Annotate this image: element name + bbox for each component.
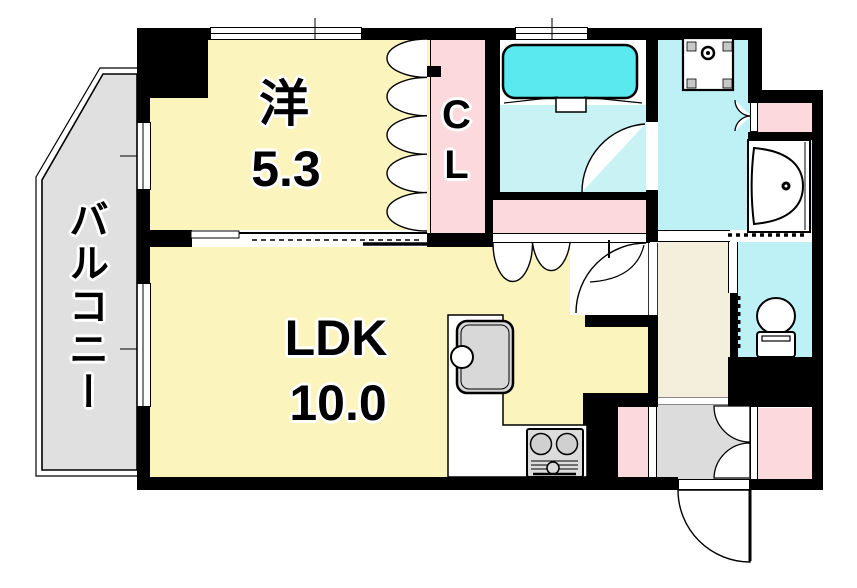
wall-vestibule-south [585, 315, 648, 327]
entry-door-icon [678, 490, 750, 562]
bathtub-area [500, 40, 646, 105]
hallway-floor [658, 242, 730, 397]
western-room-size: 5.3 [236, 142, 336, 196]
balcony-label: バルコニー [62, 186, 114, 426]
entrance-closet-leaf [750, 407, 758, 479]
entry-door-frame [678, 479, 750, 490]
window-bath-top [515, 27, 588, 40]
wall-vestibule-hall [648, 315, 658, 397]
linen-closet-leaf [750, 100, 758, 132]
linen-closet-floor [753, 100, 812, 132]
wall-se-block [583, 407, 618, 477]
wall-below-linen [748, 132, 812, 140]
toilet-doorway [728, 242, 738, 293]
wall-cl-bath [485, 40, 500, 200]
entrance-floor [657, 405, 750, 479]
ldk-vestibule [570, 243, 650, 315]
floor-plan: 洋 5.3 LDK 10.0 CL バルコニー [0, 0, 857, 588]
sliding-door-band-western-ldk [190, 230, 427, 247]
ldk-floor-east [585, 327, 648, 393]
wall-below-toilet [728, 357, 823, 407]
ldk-size: 10.0 [258, 376, 418, 430]
shoe-cabinet-right [758, 408, 812, 479]
wall-below-cl [427, 233, 493, 247]
toilet-room-floor [738, 242, 812, 357]
wall-corner-block [150, 40, 208, 98]
wall-western-south [137, 230, 192, 247]
window-western-top [210, 27, 362, 40]
western-room-label: 洋 [234, 76, 334, 132]
wall-bath-south [485, 192, 658, 200]
wall-left [137, 40, 150, 477]
wall-top-right [748, 90, 823, 103]
wall-right [812, 90, 823, 479]
wall-bath-right-upper [646, 28, 658, 122]
window-western-left [136, 122, 151, 190]
window-ldk-left [136, 283, 151, 407]
wall-bottom [137, 477, 678, 490]
bathroom-door-gap [646, 120, 658, 190]
entrance-step [658, 397, 730, 405]
bathroom-floor [500, 105, 646, 192]
ldk-label: LDK [256, 311, 416, 365]
washroom-doorway [658, 230, 730, 242]
wall-toilet-left [730, 293, 738, 357]
wall-ldk-se [583, 393, 658, 407]
closet-cl-label: CL [440, 90, 473, 190]
entrance-left-strip [648, 407, 657, 479]
pantry-closet-floor [493, 200, 648, 233]
shoe-cabinet-left [617, 407, 648, 479]
closet-vestibule-band [493, 233, 650, 243]
wall-bottom-right [750, 479, 823, 490]
wall-nub-cl [427, 66, 441, 77]
wall-washroom-right [748, 40, 762, 90]
